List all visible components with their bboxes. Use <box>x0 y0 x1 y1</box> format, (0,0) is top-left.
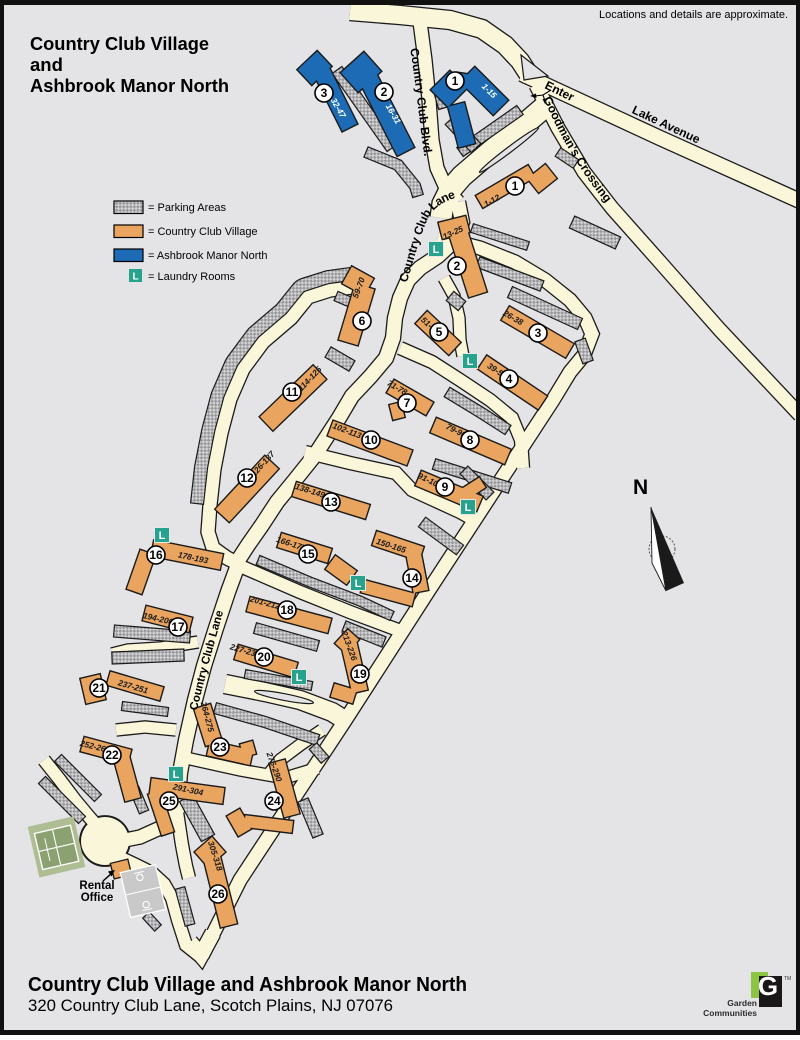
svg-text:Locations and details are appr: Locations and details are approximate. <box>599 9 788 21</box>
svg-text:2: 2 <box>381 85 388 99</box>
svg-text:12: 12 <box>240 471 254 485</box>
svg-text:24: 24 <box>267 794 281 808</box>
svg-text:3: 3 <box>321 86 328 100</box>
svg-text:7: 7 <box>404 396 411 410</box>
svg-text:15: 15 <box>301 547 315 561</box>
svg-text:= Ashbrook Manor North: = Ashbrook Manor North <box>148 250 268 262</box>
svg-text:18: 18 <box>280 603 294 617</box>
svg-text:= Parking Areas: = Parking Areas <box>148 202 226 214</box>
svg-text:L: L <box>159 530 166 542</box>
svg-text:19: 19 <box>353 667 367 681</box>
svg-text:G: G <box>758 971 778 1001</box>
svg-text:= Country Club Village: = Country Club Village <box>148 226 258 238</box>
svg-text:L: L <box>355 578 362 590</box>
svg-text:Country Club Village and Ashbr: Country Club Village and Ashbrook Manor … <box>28 974 467 996</box>
svg-text:10: 10 <box>364 433 378 447</box>
svg-text:320 Country Club Lane, Scotch: 320 Country Club Lane, Scotch Plains, NJ… <box>28 997 393 1015</box>
svg-text:Rental: Rental <box>79 880 114 892</box>
svg-text:L: L <box>132 272 138 283</box>
svg-text:2: 2 <box>454 259 461 273</box>
svg-text:16: 16 <box>149 548 163 562</box>
svg-text:Ashbrook Manor North: Ashbrook Manor North <box>30 75 229 96</box>
svg-text:Office: Office <box>81 892 114 904</box>
svg-text:L: L <box>467 356 474 368</box>
svg-text:25: 25 <box>162 794 176 808</box>
svg-text:1: 1 <box>512 179 519 193</box>
svg-text:and: and <box>30 54 63 75</box>
svg-text:L: L <box>173 769 180 781</box>
svg-text:11: 11 <box>286 385 299 399</box>
svg-text:14: 14 <box>405 571 419 585</box>
svg-text:13: 13 <box>324 495 338 509</box>
svg-text:TM: TM <box>784 976 791 982</box>
svg-text:Garden: Garden <box>727 998 757 1008</box>
svg-text:26: 26 <box>211 887 225 901</box>
svg-text:21: 21 <box>92 681 106 695</box>
svg-text:4: 4 <box>506 372 513 386</box>
svg-text:1: 1 <box>452 74 459 88</box>
svg-text:L: L <box>465 502 472 514</box>
svg-text:23: 23 <box>213 740 227 754</box>
svg-text:17: 17 <box>171 620 185 634</box>
svg-text:Country Club Village: Country Club Village <box>30 33 209 54</box>
svg-text:L: L <box>296 672 303 684</box>
svg-text:6: 6 <box>359 314 366 328</box>
svg-text:22: 22 <box>105 748 119 762</box>
svg-text:9: 9 <box>442 480 449 494</box>
svg-text:Communities: Communities <box>703 1008 757 1018</box>
svg-text:20: 20 <box>257 650 271 664</box>
svg-text:= Laundry Rooms: = Laundry Rooms <box>148 271 236 283</box>
svg-text:N: N <box>633 476 648 499</box>
svg-text:8: 8 <box>467 433 474 447</box>
svg-text:L: L <box>433 244 440 256</box>
svg-text:3: 3 <box>535 326 542 340</box>
svg-text:5: 5 <box>436 325 443 339</box>
